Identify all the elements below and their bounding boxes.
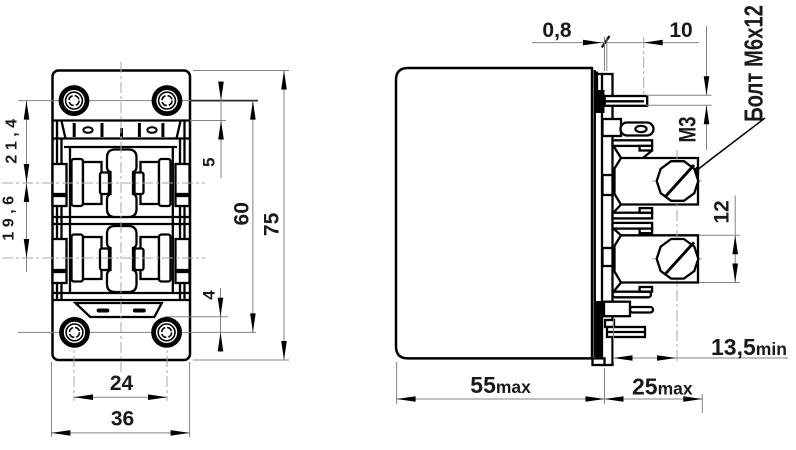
svg-text:М3: М3 (674, 116, 701, 142)
svg-text:36: 36 (111, 408, 134, 431)
svg-text:0,8: 0,8 (542, 19, 572, 42)
svg-text:Болт М6х12: Болт М6х12 (739, 5, 768, 122)
svg-text:5: 5 (200, 158, 219, 167)
svg-text:75: 75 (261, 212, 284, 236)
svg-text:12: 12 (711, 200, 734, 223)
svg-text:4: 4 (200, 290, 219, 300)
svg-text:60: 60 (230, 202, 253, 225)
svg-text:21,4: 21,4 (4, 114, 21, 163)
svg-text:19,6: 19,6 (1, 191, 18, 240)
svg-text:24: 24 (110, 372, 134, 395)
svg-text:10: 10 (669, 19, 692, 42)
